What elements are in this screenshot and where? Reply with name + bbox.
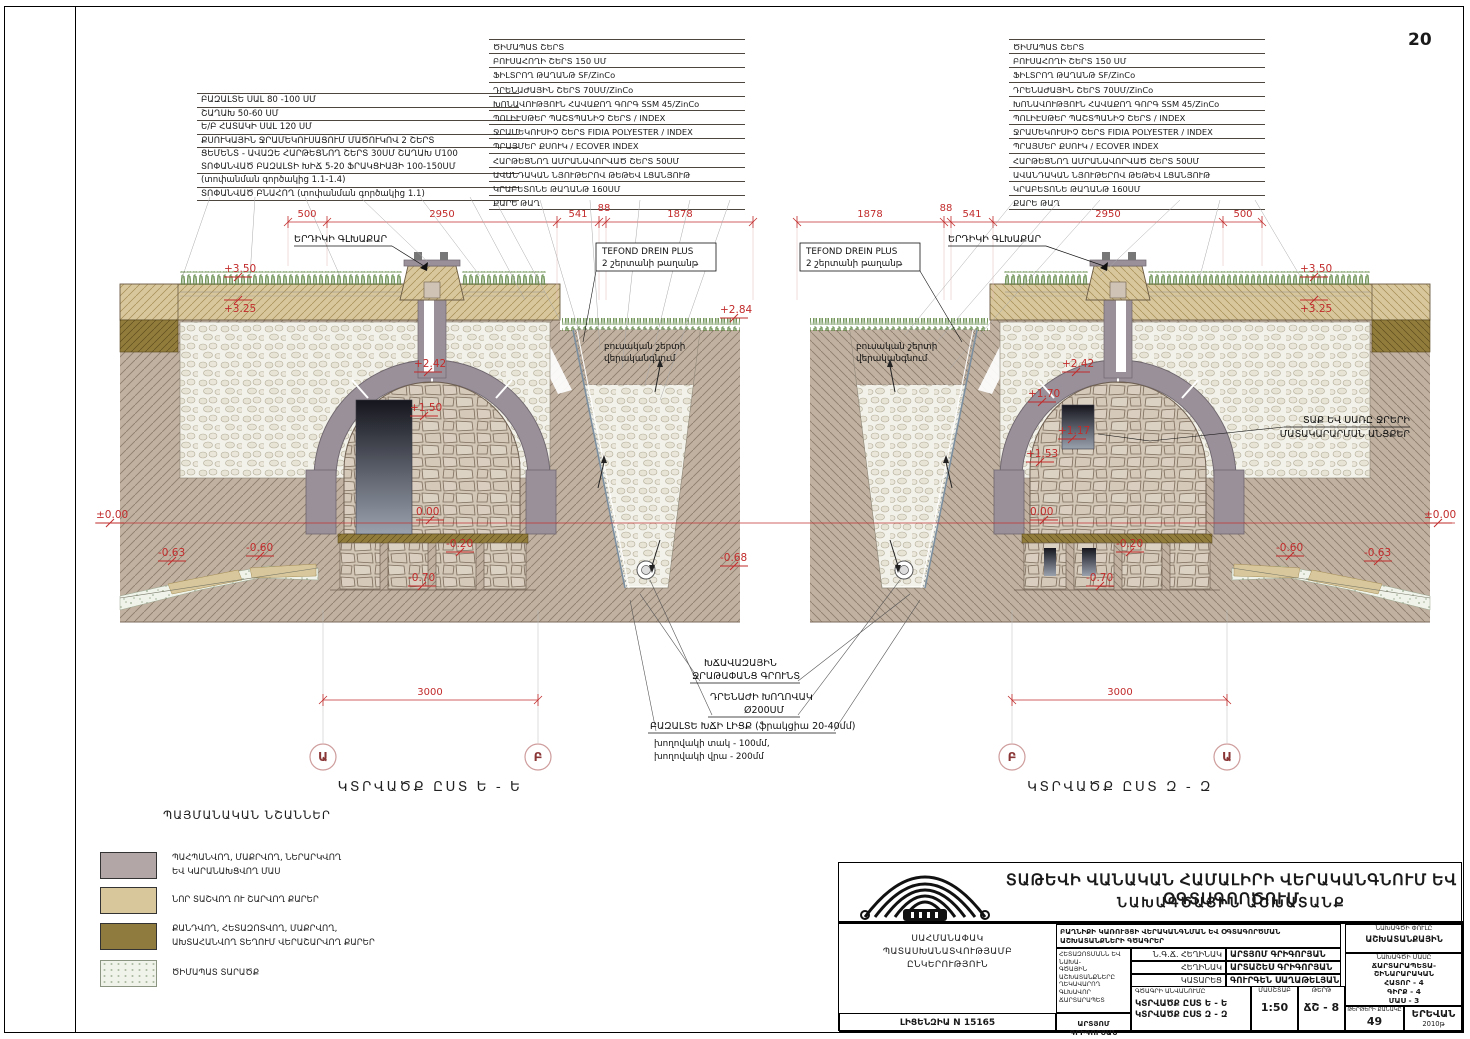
vegetation-restore-label: վերականգնում <box>856 354 928 364</box>
works-title-line: ԱՇԽԱՏԱՆՔՆԵՐԻ ԳԾԱԳՐԵՐ <box>1060 936 1337 945</box>
dim-label: 3000 <box>417 687 442 698</box>
year-value: 2010թ <box>1405 1020 1462 1028</box>
title-block: ՏԱԹԵՎԻ ՎԱՆԱԿԱՆ ՀԱՄԱԼԻՐԻ ՎԵՐԱԿԱՆԳՆՈՒՄ ԵՎ … <box>838 862 1462 1031</box>
role-label: Ն.Գ.Ճ. ՀԵՂԻՆԱԿ <box>1131 948 1226 961</box>
scale-cell: ՄԱՍՇՏԱԲ 1:50 <box>1251 986 1298 1032</box>
elevation-mark: -0.60 <box>1276 542 1303 554</box>
elevation-mark: +2.42 <box>1062 358 1094 370</box>
elevation-mark: -0.20 <box>446 538 473 550</box>
basalt-fill-note: խողովակի տակ - 100մմ, <box>654 739 770 749</box>
skylight-capstone-label: ԵՐԴԻԿԻ ԳԼԽԱՔԱՐ <box>948 234 1042 245</box>
elevation-mark: +1.50 <box>410 402 442 414</box>
project-stage-cell: ՆԱԽԱԳԾԻ ՓՈՒԼԸ ԱՇԽԱՏԱՆՔԱՅԻՆ <box>1345 924 1463 953</box>
elevation-mark: -0.70 <box>408 572 435 584</box>
project-stage-value: ԱՇԽԱՏԱՆՔԱՅԻՆ <box>1346 935 1462 945</box>
dim-label: 3000 <box>1107 687 1132 698</box>
legend-swatch-preserved <box>100 852 157 879</box>
legend-swatch-relaid-stones <box>100 923 157 950</box>
section-title-right: ԿՏՐՎԱԾՔ ԸՍՏ Զ - Զ <box>1027 779 1213 795</box>
chief-architect-role: ՀԵՏԱԶՈՏՄԱՆՆ ԵՎ ՆԱԽԱ- ԳԾԱՅԻՆ ԱՇԽԱՏԱՆՔՆԵՐԸ… <box>1056 948 1131 1013</box>
project-part-cell: ՆԱԽԱԳԾԻ ՄԱՍԸ ՃԱՐՏԱՐԱՊԵՏԱ- ՇԻՆԱՐԱՐԱԿԱՆ ՀԱ… <box>1345 953 1463 1006</box>
basalt-fill-label: ԲԱԶԱԼՏԵ ԽՃԻ ԼԻՑՔ (ֆրակցիա 20-40մմ) <box>650 721 855 732</box>
role-name: ԱՐՏԱՇԵՍ ԳՐԻԳՈՐՅԱՆ <box>1226 961 1341 974</box>
left-doorway <box>356 400 412 534</box>
legend-swatch-sodded-area <box>100 960 157 987</box>
gravel-ground-label: ՋՐԱԹԱՓԱՆՑ ԳՐՈՒՆՏ <box>692 671 800 682</box>
elevation-mark: +3.25 <box>224 303 256 315</box>
dim-label: 1878 <box>667 209 692 220</box>
role-label: ՀԵՂԻՆԱԿ <box>1131 961 1226 974</box>
elevation-mark: -0.70 <box>1086 572 1113 584</box>
elevation-mark: +2.84 <box>720 304 752 316</box>
chief-role-line: ՀԵՏԱԶՈՏՄԱՆՆ ԵՎ ՆԱԽԱ- <box>1059 951 1128 966</box>
dim-label: 2950 <box>429 209 454 220</box>
legend-swatch-new-stones <box>100 887 157 914</box>
right-foundation-slot <box>1044 548 1056 576</box>
dim-label: 88 <box>940 203 953 214</box>
sheet-code-value: ՃՇ - 8 <box>1299 1001 1344 1014</box>
elevation-mark: +1.70 <box>1028 388 1060 400</box>
works-title: ԲԱՂՆԻՔԻ ԿԱՌՈՒՅՑԻ ՎԵՐԱԿԱՆԳՆՄԱՆ ԵՎ ՕԳՏԱԳՈՐ… <box>1056 924 1341 948</box>
elevation-mark: +3.25 <box>1300 303 1332 315</box>
section-title-left: ԿՏՐՎԱԾՔ ԸՍՏ Ե - Ե <box>338 779 523 795</box>
sheet-count-value: 49 <box>1346 1015 1403 1028</box>
drawing-name-cell: ԳԾԱԳՐԻ ԱՆՎԱՆՈՒՄԸ ԿՏՐՎԱԾՔ ԸՍՏ Ե - Ե ԿՏՐՎԱ… <box>1131 986 1251 1032</box>
elevation-mark: ±0.00 <box>1424 509 1456 521</box>
elevation-mark: +2.42 <box>414 358 446 370</box>
legend-line: ՆՈՐ ՏԱՇՎՈՂ ՈՒ ՇԱՐՎՈՂ ՔԱՐԵՐ <box>172 893 319 907</box>
elevation-mark: -0.60 <box>246 542 273 554</box>
dim-label: 541 <box>568 209 587 220</box>
axis-label: Ա <box>318 750 328 764</box>
legend-title: ՊԱՅՄԱՆԱԿԱՆ ՆՇԱՆՆԵՐ <box>163 808 331 822</box>
elevation-mark: -0.68 <box>720 552 747 564</box>
company-line: ՍԱՀՄԱՆԱՓԱԿ <box>839 933 1056 946</box>
scale-label: ՄԱՍՇՏԱԲ <box>1252 987 1297 995</box>
dim-label: 2950 <box>1095 209 1120 220</box>
legend-label: ՊԱՀՊԱՆՎՈՂ, ՄԱՔՐՎՈՂ, ՆԵՐԱՐԿՎՈՂ ԵՎ ԿԱՐԱՆԱԽ… <box>172 851 341 879</box>
elevation-mark: 0.00 <box>1030 506 1053 518</box>
drawing-name-line: ԿՏՐՎԱԾՔ ԸՍՏ Ե - Ե <box>1135 999 1247 1010</box>
company-line: ԸՆԿԵՐՈՒԹՅՈՒՆ <box>839 959 1056 972</box>
legend-line: ԵՎ ԿԱՐԱՆԱԽՑՎՈՂ ՄԱՍ <box>172 865 341 879</box>
sheet-code-label: ԹԵՐԹ <box>1299 987 1344 995</box>
skylight-capstone-label: ԵՐԴԻԿԻ ԳԼԽԱՔԱՐ <box>294 234 388 245</box>
axis-label: Բ <box>534 750 543 764</box>
chief-role-line: ՃԱՐՏԱՐԱՊԵՏ <box>1059 997 1128 1005</box>
company-name: ՍԱՀՄԱՆԱՓԱԿ ՊԱՏԱՍԽԱՆԱՏՎՈՒԹՅԱՄԲ ԸՆԿԵՐՈՒԹՅՈ… <box>839 933 1056 972</box>
company-line: ՊԱՏԱՍԽԱՆԱՏՎՈՒԹՅԱՄԲ <box>839 946 1056 959</box>
drain-pipe-label: ԴՐԵՆԱԺԻ ԽՈՂՈՎԱԿ <box>710 692 813 703</box>
drawing-name-label: ԳԾԱԳՐԻ ԱՆՎԱՆՈՒՄԸ <box>1135 988 1247 996</box>
project-part-line: ՄԱՍ - 3 <box>1346 997 1462 1006</box>
elevation-mark: -0.20 <box>1116 538 1143 550</box>
elevation-mark: +3.50 <box>224 263 256 275</box>
legend-line: ԾԻՄԱՊԱՏ ՏԱՐԱԾՔ <box>172 966 259 980</box>
dim-label: 1878 <box>857 209 882 220</box>
tefond-sublabel: 2 շերտանի թաղանթ <box>806 259 903 269</box>
legend-label: ՔԱՆԴՎՈՂ, ՀԵՏԱԶՈՏՎՈՂ, ՄԱՔՐՎՈՂ, ԱԽՏԱՀԱՆՎՈՂ… <box>172 922 375 950</box>
chief-role-line: ՂԵԿԱՎԱՐՈՂ ԳԼԽԱՎՈՐ <box>1059 981 1128 996</box>
license-number: ԼԻՑԵՆԶԻԱ N 15165 <box>839 1013 1056 1032</box>
tefond-label: TEFOND DREIN PLUS <box>805 247 898 257</box>
chief-role-line: ԳԾԱՅԻՆ ԱՇԽԱՏԱՆՔՆԵՐԸ <box>1059 966 1128 981</box>
vegetation-restore-label: վերականգնում <box>604 354 676 364</box>
elevation-mark: +1.17 <box>1058 425 1090 437</box>
axis-label: Ա <box>1222 750 1232 764</box>
city-year-cell: ԵՐԵՎԱՆ 2010թ <box>1404 1006 1463 1032</box>
elevation-mark: +3.50 <box>1300 263 1332 275</box>
tatev-peacock-logo <box>845 865 1005 923</box>
city-value: ԵՐԵՎԱՆ <box>1405 1009 1462 1020</box>
axis-label: Բ <box>1008 750 1017 764</box>
elevation-mark: -0.63 <box>158 547 185 559</box>
elevation-mark: 0.00 <box>416 506 439 518</box>
elevation-mark: -0.63 <box>1364 547 1391 559</box>
legend-label: ՆՈՐ ՏԱՇՎՈՂ ՈՒ ՇԱՐՎՈՂ ՔԱՐԵՐ <box>172 893 319 907</box>
legend-line: ՊԱՀՊԱՆՎՈՂ, ՄԱՔՐՎՈՂ, ՆԵՐԱՐԿՎՈՂ <box>172 851 341 865</box>
drawing-sheet: 20 ԲԱԶԱԼՏԵ ՍԱԼ 80 -100 ՍՄՇԱՂԱԽ 50-60 ՍՄԵ… <box>0 0 1470 1039</box>
water-supply-label: ՄԱՏԱԿԱՐԱՐՄԱՆ ԱՆՑՔԵՐ <box>1280 429 1411 440</box>
scale-value: 1:50 <box>1252 1001 1297 1014</box>
water-supply-label: ՏԱՔ ԵՎ ՍԱՌԸ ՋՐԵՐԻ <box>1303 415 1410 426</box>
dim-label: 541 <box>962 209 981 220</box>
elevation-mark: ±0.00 <box>96 509 128 521</box>
works-title-line: ԲԱՂՆԻՔԻ ԿԱՌՈՒՅՑԻ ՎԵՐԱԿԱՆԳՆՄԱՆ ԵՎ ՕԳՏԱԳՈՐ… <box>1060 927 1337 936</box>
sheet-code-cell: ԹԵՐԹ ՃՇ - 8 <box>1298 986 1345 1032</box>
legend-label: ԾԻՄԱՊԱՏ ՏԱՐԱԾՔ <box>172 966 259 980</box>
sheet-count-label: ԹԵՐԹԵՐԻ ՔԱՆԱԿԸ <box>1346 1007 1403 1015</box>
tefond-sublabel: 2 շերտանի թաղանթ <box>602 259 699 269</box>
dim-label: 500 <box>297 209 316 220</box>
sheet-count-cell: ԹԵՐԹԵՐԻ ՔԱՆԱԿԸ 49 <box>1345 1006 1404 1032</box>
elevation-mark: +1.53 <box>1026 448 1058 460</box>
basalt-fill-note: խողովակի վրա - 200մմ <box>654 752 764 762</box>
drawing-name-line: ԿՏՐՎԱԾՔ ԸՍՏ Զ - Զ <box>1135 1010 1247 1021</box>
dim-label: 500 <box>1233 209 1252 220</box>
drain-pipe-diameter: Ø200ՍՄ <box>744 705 785 716</box>
legend-line: ԱԽՏԱՀԱՆՎՈՂ ՏԵՂՈՒՄ ՎԵՐԱՇԱՐՎՈՂ ՔԱՐԵՐ <box>172 936 375 950</box>
legend-line: ՔԱՆԴՎՈՂ, ՀԵՏԱԶՈՏՎՈՂ, ՄԱՔՐՎՈՂ, <box>172 922 375 936</box>
tefond-label: TEFOND DREIN PLUS <box>601 247 694 257</box>
project-subtitle: ՆԱԽԱԳԾԱՅԻՆ ԱՇԽԱՏԱՆՔ <box>1004 895 1459 911</box>
chief-architect-name: ԱՐՏՅՈՄ ԳՐԻԳՈՐՅԱՆ <box>1056 1013 1131 1032</box>
gravel-ground-label: ԽՃԱՎԱԶԱՅԻՆ <box>704 658 777 669</box>
vegetation-restore-label: բուսական շերտի <box>604 342 685 352</box>
vegetation-restore-label: բուսական շերտի <box>856 342 937 352</box>
role-name: ԱՐՏՅՈՄ ԳՐԻԳՈՐՅԱՆ <box>1226 948 1341 961</box>
project-stage-label: ՆԱԽԱԳԾԻ ՓՈՒԼԸ <box>1346 925 1462 933</box>
dim-label: 88 <box>598 203 611 214</box>
